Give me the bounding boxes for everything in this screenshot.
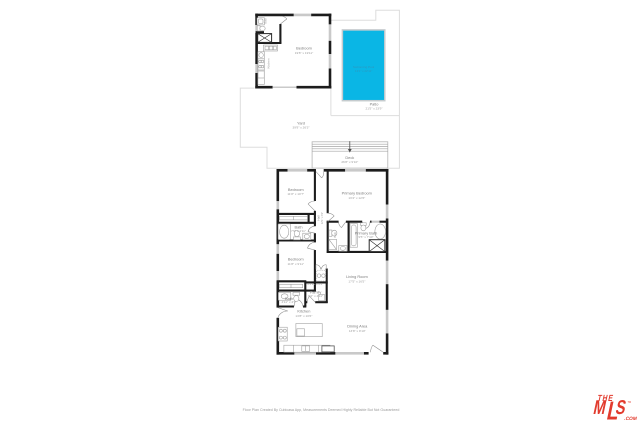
svg-text:.COM: .COM bbox=[624, 416, 638, 422]
svg-text:13'8" x 10'6": 13'8" x 10'6" bbox=[295, 314, 312, 318]
svg-text:26'8" x 9'10": 26'8" x 9'10" bbox=[341, 160, 358, 164]
svg-text:17'5" x 16'5": 17'5" x 16'5" bbox=[348, 279, 365, 283]
svg-text:Bath: Bath bbox=[333, 231, 337, 237]
svg-text:13'1" x 22'11": 13'1" x 22'11" bbox=[355, 69, 372, 73]
svg-text:39'9" x 26'3": 39'9" x 26'3" bbox=[293, 126, 310, 130]
svg-text:8'2" x 4'11": 8'2" x 4'11" bbox=[308, 294, 323, 298]
svg-text:Hall: Hall bbox=[316, 215, 320, 221]
svg-text:TM: TM bbox=[628, 401, 631, 404]
svg-text:Bedroom: Bedroom bbox=[296, 46, 312, 51]
svg-text:9'5" x 7'10": 9'5" x 7'10" bbox=[358, 235, 373, 239]
svg-text:13'8" x 9'10": 13'8" x 9'10" bbox=[349, 329, 366, 333]
svg-text:7'9" x 4'11": 7'9" x 4'11" bbox=[291, 229, 306, 233]
svg-text:Floor Plan Created By Cubicasa: Floor Plan Created By Cubicasa App, Meas… bbox=[243, 408, 400, 412]
svg-text:11'8" x 10'7": 11'8" x 10'7" bbox=[287, 192, 304, 196]
svg-text:Yard: Yard bbox=[297, 120, 305, 125]
svg-text:11'8" x 9'11": 11'8" x 9'11" bbox=[288, 262, 305, 266]
svg-text:Kitchen: Kitchen bbox=[267, 58, 271, 68]
svg-text:21'5" x 23'9": 21'5" x 23'9" bbox=[366, 107, 383, 111]
svg-text:13'4" x 12'6": 13'4" x 12'6" bbox=[348, 196, 365, 200]
svg-text:12'1" x 3'2": 12'1" x 3'2" bbox=[321, 212, 324, 224]
svg-text:Bath: Bath bbox=[264, 18, 268, 24]
svg-text:4'11" x 4'7": 4'11" x 4'7" bbox=[281, 300, 296, 304]
svg-text:19'8" x 19'11": 19'8" x 19'11" bbox=[295, 51, 313, 55]
